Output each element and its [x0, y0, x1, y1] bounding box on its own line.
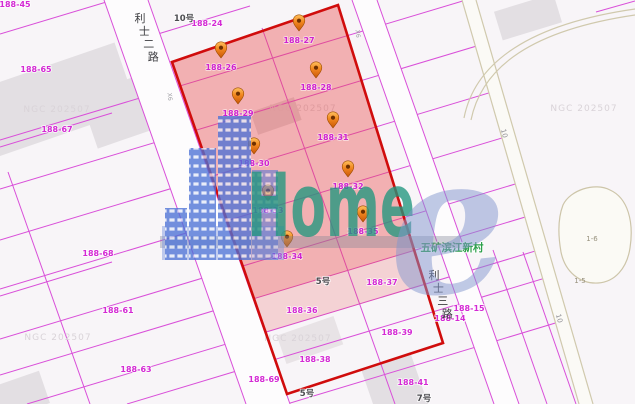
pin-dot [314, 66, 318, 70]
pin-dot [285, 235, 289, 239]
pin-label: 188-35 [347, 227, 379, 236]
parcel-label: 188-65 [20, 65, 52, 74]
building-number-label: 7号 [417, 394, 432, 404]
pin-label: 188-34 [271, 252, 303, 261]
ngc-watermark: NGC 202507 [23, 105, 90, 115]
parcel-label: 188-68 [82, 249, 114, 258]
parcel-label: 188-39 [381, 328, 413, 337]
ngc-watermark: NGC 202507 [550, 104, 617, 114]
road-name-char: 路 [442, 307, 453, 320]
map-canvas[interactable]: NGC 202507NGC 202507NGC 202507NGC 202507… [0, 0, 635, 404]
pin-label: 188-27 [283, 36, 314, 45]
road-name-char: 利 [429, 269, 440, 282]
pin-dot [219, 46, 223, 50]
road-name-char: 士 [433, 282, 444, 295]
pin-dot [331, 116, 335, 120]
parcel-label: 188-38 [299, 355, 331, 364]
pin-label: 188-26 [205, 63, 237, 72]
parcel-label: 188-15 [453, 304, 485, 313]
building-number-label: 5号 [300, 389, 315, 399]
road-name-char: 士 [139, 25, 150, 38]
pin-dot [297, 19, 301, 23]
parcel-label: 188-61 [102, 306, 134, 315]
pin-label: 188-28 [300, 83, 332, 92]
pin-dot [252, 142, 256, 146]
pin-label: 188-32 [332, 182, 363, 191]
poi-label: 五矿滨江新村 [421, 241, 484, 254]
ngc-watermark: NGC 202507 [24, 333, 91, 343]
pin-label: 188-30 [238, 159, 270, 168]
building-number-label: 5号 [316, 277, 331, 287]
road-name-char: 路 [148, 50, 159, 63]
parcel-label: 188-63 [120, 365, 151, 374]
road-marker: X6 [166, 92, 174, 101]
pin-dot [361, 210, 365, 214]
parcel-label: 188-67 [41, 125, 72, 134]
terrain-label: 1-6 [586, 235, 598, 243]
parcel-label: 188-69 [248, 375, 280, 384]
parcel-label: 188-36 [286, 306, 318, 315]
pin-label: 188-31 [317, 133, 349, 142]
building-number-label: 10号 [174, 14, 195, 24]
parcel-label: 188-41 [397, 378, 429, 387]
pin-label: 188-29 [222, 109, 254, 118]
road-marker: X6 [354, 29, 362, 38]
pin-dot [236, 92, 240, 96]
pin-dot [266, 189, 270, 193]
parcel-label: 188-24 [191, 19, 223, 28]
parcel-label: 188-45 [0, 0, 31, 9]
parcel-label: 188-37 [366, 278, 397, 287]
road-name-char: 利 [135, 12, 146, 25]
terrain-label: 1-5 [574, 277, 585, 285]
ngc-watermark: NGC 202507 [264, 334, 331, 344]
map-viewport[interactable]: NGC 202507NGC 202507NGC 202507NGC 202507… [0, 0, 635, 404]
road-name-char: 二 [143, 38, 154, 51]
pin-dot [346, 165, 350, 169]
road-name-char: 三 [437, 295, 448, 308]
pin-label: 188-33 [252, 206, 283, 215]
